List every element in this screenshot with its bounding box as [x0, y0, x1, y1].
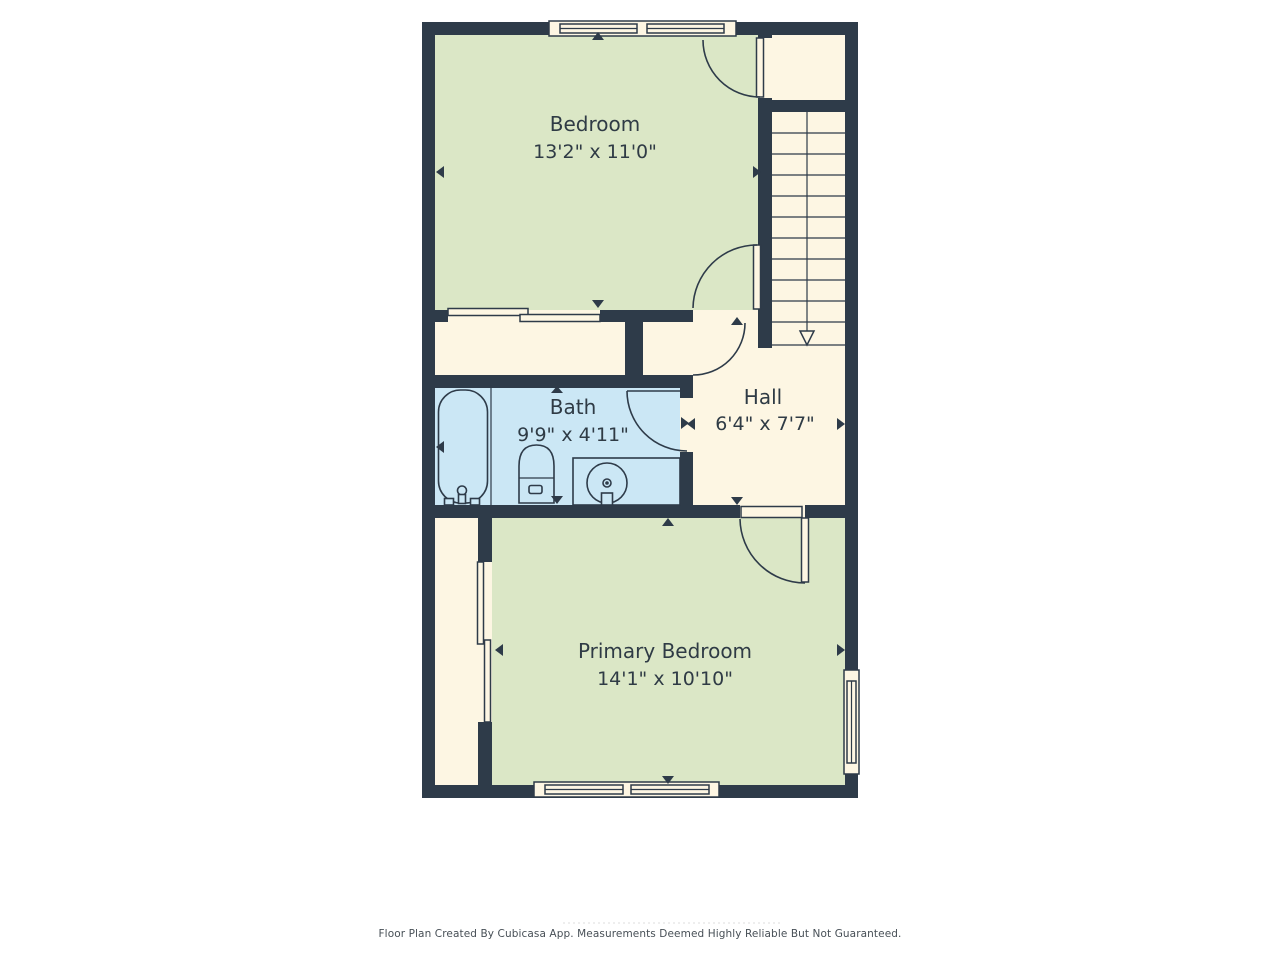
closet-floor: [435, 322, 625, 375]
primary-bedroom-dimensions: 14'1" x 10'10": [597, 668, 733, 690]
wall-landing-bottom: [772, 100, 845, 112]
bedroom-dimensions: 13'2" x 11'0": [533, 141, 657, 163]
window-bedroom-top: [549, 21, 736, 36]
primary-bedroom-label: Primary Bedroom: [578, 639, 752, 663]
wall-left: [422, 22, 435, 798]
window-primary-bottom: [534, 782, 719, 797]
footer-disclaimer: Floor Plan Created By Cubicasa App. Meas…: [379, 928, 902, 940]
window-primary-right: [844, 670, 859, 774]
floor-plan-page: Bedroom 13'2" x 11'0" Bath 9'9" x 4'11" …: [0, 0, 1280, 960]
stair-landing-floor: [772, 35, 845, 100]
floor-plan-canvas: Bedroom 13'2" x 11'0" Bath 9'9" x 4'11" …: [0, 0, 1280, 960]
small-closet-floor: [643, 322, 680, 375]
bath-dimensions: 9'9" x 4'11": [517, 424, 629, 446]
bath-label: Bath: [550, 395, 597, 419]
bathtub: [439, 390, 488, 505]
wall-bath-top: [422, 375, 693, 388]
sink-vanity: [573, 458, 680, 505]
opening-hall-closet-door: [680, 322, 693, 375]
bedroom-label: Bedroom: [550, 112, 640, 136]
hall-dimensions: 6'4" x 7'7": [715, 413, 815, 435]
hall-label: Hall: [744, 385, 782, 409]
opening-bedroom-bottom-door: [693, 310, 758, 322]
room-bedroom-floor: [435, 35, 758, 310]
staircase-floor: [772, 112, 845, 345]
toilet: [519, 445, 554, 503]
primary-closet-floor: [435, 518, 478, 785]
